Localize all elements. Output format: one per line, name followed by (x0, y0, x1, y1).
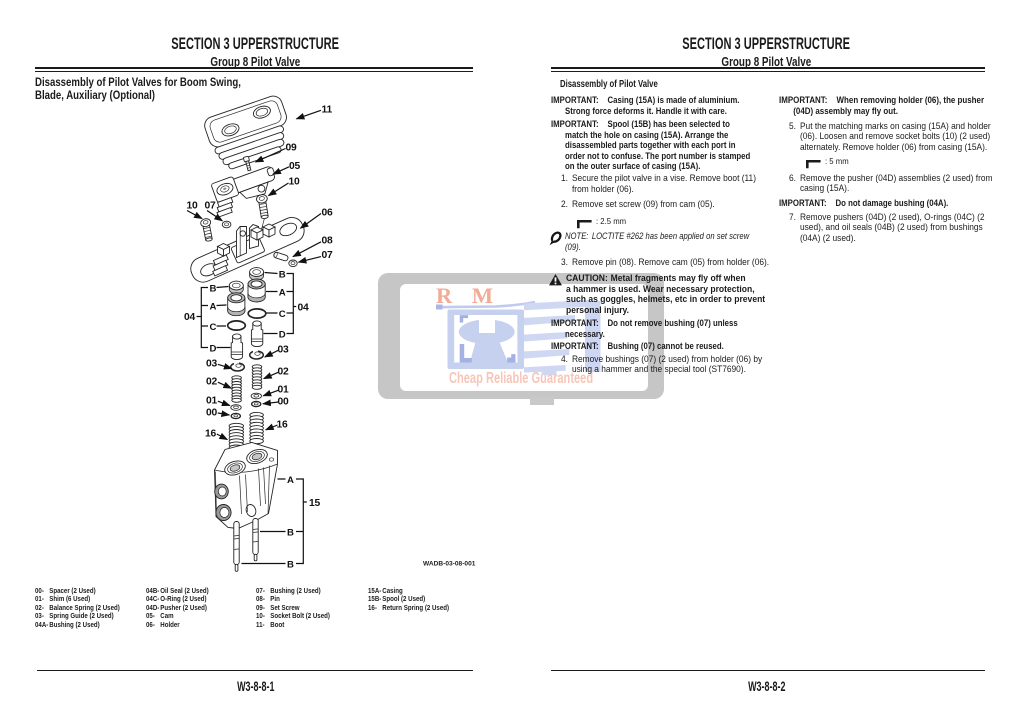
svg-text:04: 04 (298, 302, 310, 313)
svg-text:15: 15 (309, 498, 321, 509)
svg-text:04: 04 (184, 312, 196, 323)
svg-text:A: A (210, 301, 217, 312)
svg-text:WADB-03-08-001: WADB-03-08-001 (423, 561, 476, 568)
svg-text:16: 16 (277, 419, 289, 430)
svg-text:D: D (210, 343, 217, 354)
svg-text:01: 01 (206, 395, 218, 406)
svg-text:07: 07 (205, 200, 217, 211)
svg-text:02: 02 (206, 376, 218, 387)
svg-text:D: D (279, 329, 286, 340)
svg-text:02: 02 (278, 366, 290, 377)
svg-text:03: 03 (206, 358, 218, 369)
svg-text:08: 08 (322, 235, 334, 246)
svg-text:05: 05 (289, 161, 301, 172)
svg-text:10: 10 (289, 176, 301, 187)
svg-text:10: 10 (187, 200, 199, 211)
svg-text:C: C (210, 322, 217, 333)
svg-text:01: 01 (278, 384, 290, 395)
svg-text:07: 07 (322, 250, 334, 261)
svg-text:B: B (287, 528, 294, 539)
svg-text:03: 03 (278, 344, 290, 355)
svg-text:B: B (287, 560, 294, 571)
svg-text:A: A (287, 475, 294, 486)
svg-text:B: B (279, 269, 286, 280)
svg-text:09: 09 (286, 142, 298, 153)
svg-text:B: B (210, 283, 217, 294)
svg-text:11: 11 (322, 104, 333, 115)
svg-text:06: 06 (322, 207, 334, 218)
svg-text:16: 16 (205, 428, 217, 439)
svg-text:00: 00 (206, 407, 218, 418)
svg-text:00: 00 (278, 396, 290, 407)
svg-text:A: A (279, 287, 286, 298)
svg-text:C: C (279, 309, 286, 320)
